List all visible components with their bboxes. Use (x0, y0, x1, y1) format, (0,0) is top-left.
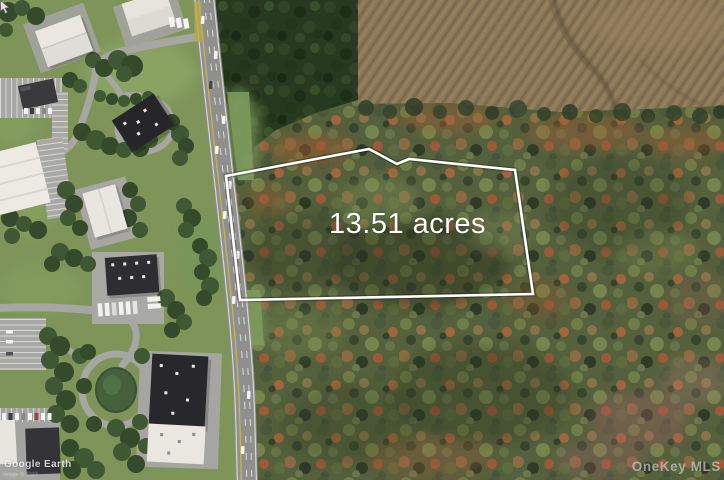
google-earth-watermark: Google Earth (4, 459, 72, 470)
onekey-mls-watermark: OneKey MLS (632, 459, 721, 474)
parcel-acreage-label: 13.51 acres (329, 208, 486, 241)
property-aerial-photo[interactable]: 13.51 acres Google Earth Image © 2023 On… (0, 0, 724, 480)
imagery-attribution: Image © 2023 (3, 472, 38, 478)
pond-highlight (103, 375, 121, 395)
building-dark-g (105, 254, 162, 299)
turn-lane-hatch (195, 2, 202, 42)
building-two-tone-i (147, 354, 212, 465)
mouse-cursor-icon (0, 0, 11, 15)
